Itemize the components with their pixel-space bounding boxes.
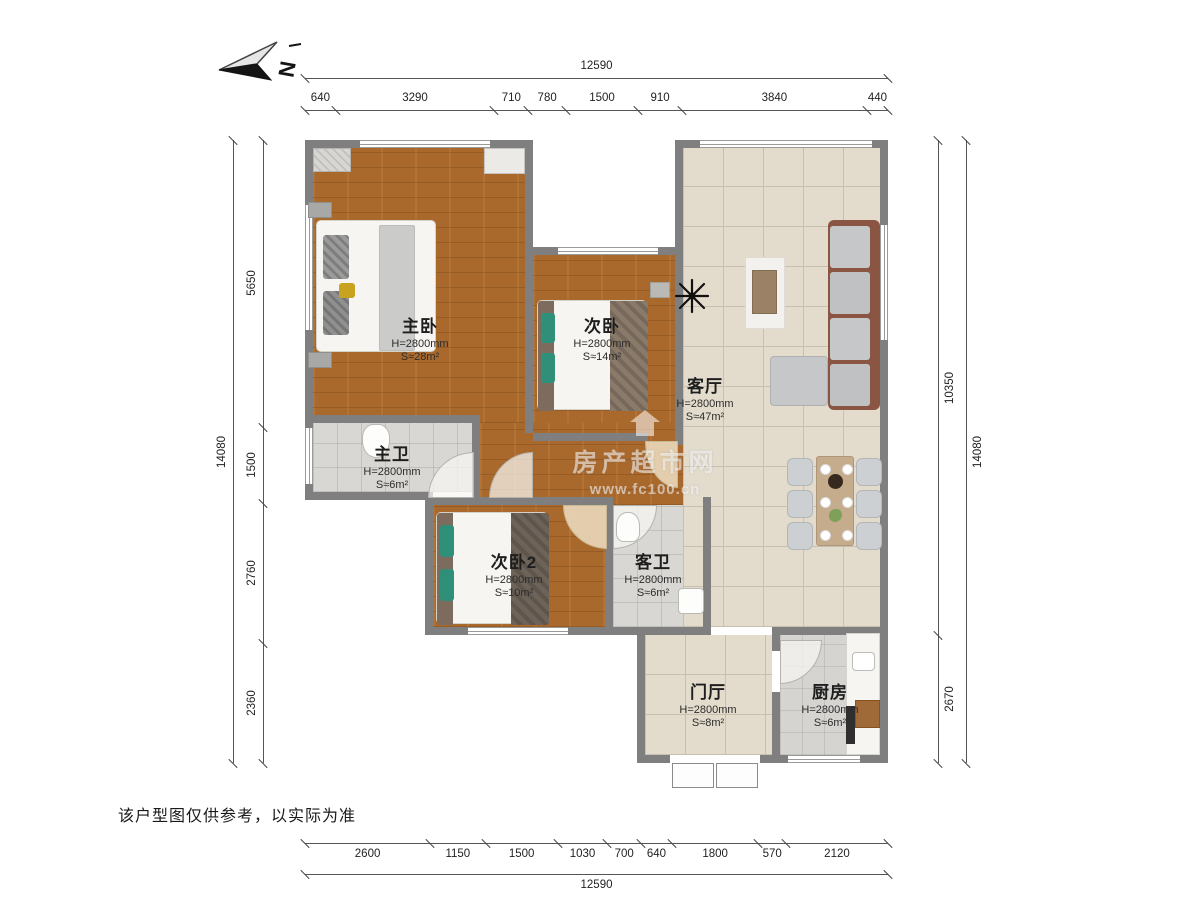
dim-label: 2120 — [824, 848, 850, 860]
dim-label: 3840 — [762, 92, 788, 104]
dim-label: 640 — [311, 92, 330, 104]
dim-label: 1800 — [702, 848, 728, 860]
blanket — [379, 225, 415, 351]
wall — [772, 692, 780, 763]
blanket — [610, 301, 648, 411]
plate — [842, 530, 853, 541]
dim-label: 780 — [538, 92, 557, 104]
dim-line — [305, 843, 888, 844]
dim-label: 2760 — [246, 560, 258, 586]
window — [305, 428, 313, 484]
dim-label: 14080 — [972, 436, 984, 468]
pillow — [541, 353, 555, 383]
wall — [433, 497, 613, 505]
dining-chair — [856, 522, 882, 550]
sofa — [828, 220, 880, 410]
dining-chair — [856, 490, 882, 518]
dim-label: 2360 — [246, 690, 258, 716]
coffee-table — [752, 270, 777, 314]
dim-line — [305, 110, 888, 111]
wall — [637, 627, 645, 763]
wall — [525, 140, 533, 433]
window — [305, 205, 313, 330]
sofa-cushion — [830, 318, 870, 360]
dining-chair — [787, 458, 813, 486]
compass-n-label: N — [273, 59, 300, 79]
dim-label: 640 — [647, 848, 666, 860]
pillow — [323, 235, 349, 279]
table-flower — [829, 509, 842, 522]
fruit-bowl — [828, 474, 843, 489]
north-compass-icon: N — [215, 34, 305, 102]
dim-label: 3290 — [402, 92, 428, 104]
sofa-chaise — [770, 356, 828, 406]
dim-label: 1500 — [589, 92, 615, 104]
sofa-cushion — [830, 226, 870, 268]
entry-opening — [670, 755, 760, 763]
wall — [533, 433, 648, 441]
pillow — [440, 569, 454, 601]
dim-label: 440 — [868, 92, 887, 104]
bedroom2-bed — [537, 300, 647, 410]
dim-label: 12590 — [581, 879, 613, 891]
dim-line — [233, 140, 234, 763]
bedroom3-bed — [436, 512, 548, 624]
sofa-cushion — [830, 272, 870, 314]
pillow — [440, 525, 454, 557]
plate — [820, 497, 831, 508]
wall — [772, 635, 780, 651]
window — [468, 627, 568, 635]
stove — [846, 706, 855, 744]
disclaimer-text: 该户型图仅供参考，以实际为准 — [118, 802, 356, 826]
entry-door-leaf — [716, 763, 758, 788]
toilet — [616, 512, 640, 542]
nightstand — [308, 202, 332, 218]
window — [880, 225, 888, 340]
floorplan-page: N — [0, 0, 1200, 900]
window — [788, 755, 860, 763]
plant-icon — [672, 276, 712, 316]
bathroom-sink — [678, 588, 704, 614]
dining-chair — [856, 458, 882, 486]
dim-line — [305, 874, 888, 875]
plate — [820, 530, 831, 541]
pillow — [339, 283, 355, 298]
dining-chair — [787, 522, 813, 550]
dim-label: 910 — [650, 92, 669, 104]
wall — [305, 415, 480, 423]
dim-label: 1500 — [246, 452, 258, 478]
wall — [305, 492, 433, 500]
window — [700, 140, 872, 148]
dim-label: 12590 — [581, 60, 613, 72]
master-closet — [313, 148, 351, 172]
sofa-cushion — [830, 364, 870, 406]
dining-chair — [787, 490, 813, 518]
dining-table — [816, 456, 854, 546]
wall — [703, 497, 711, 635]
plate — [842, 497, 853, 508]
kitchen-sink — [852, 652, 875, 671]
dim-label: 10350 — [944, 372, 956, 404]
kitchen-cabinet — [855, 700, 880, 728]
dim-line — [263, 140, 264, 763]
toilet — [362, 424, 390, 458]
dim-label: 1500 — [509, 848, 535, 860]
side-table — [650, 282, 670, 298]
wall — [425, 492, 433, 635]
dim-line — [966, 140, 967, 763]
master-closet — [484, 148, 525, 174]
plate — [842, 464, 853, 475]
window — [558, 247, 658, 255]
dim-label: 2670 — [944, 686, 956, 712]
plate — [820, 464, 831, 475]
dim-label: 1150 — [445, 848, 470, 860]
dim-label: 2600 — [355, 848, 381, 860]
dim-label: 700 — [615, 848, 634, 860]
nightstand — [308, 352, 332, 368]
dim-label: 14080 — [216, 436, 228, 468]
foyer-floor — [645, 635, 772, 755]
dim-label: 5650 — [246, 271, 258, 297]
pillow — [541, 313, 555, 343]
blanket — [511, 513, 549, 625]
master-bed — [316, 220, 436, 352]
dim-line — [938, 140, 939, 763]
dim-line — [305, 78, 888, 79]
dim-label: 710 — [502, 92, 521, 104]
dim-label: 570 — [763, 848, 782, 860]
entry-door-leaf — [672, 763, 714, 788]
dim-label: 1030 — [570, 848, 596, 860]
window — [360, 140, 490, 148]
